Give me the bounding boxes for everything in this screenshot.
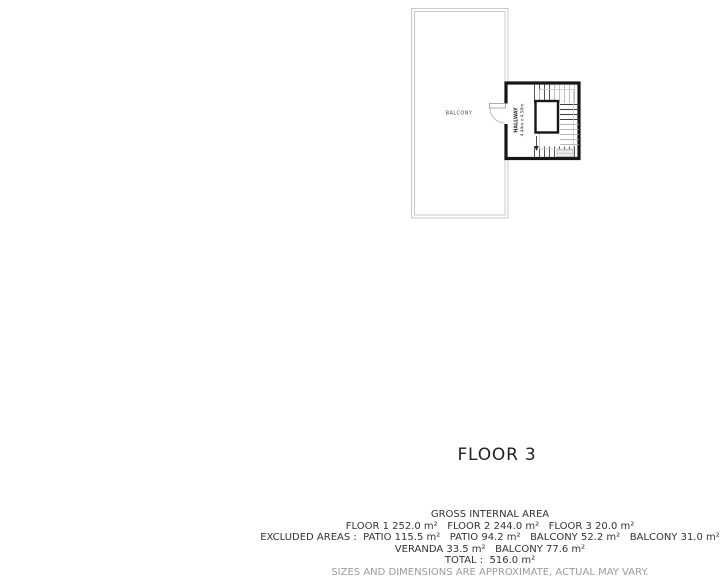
balcony-label: BALCONY: [446, 111, 473, 117]
size-disclaimer: SIZES AND DIMENSIONS ARE APPROXIMATE, AC…: [240, 567, 720, 579]
area-summary-excluded: EXCLUDED AREAS : PATIO 115.5 m² PATIO 94…: [240, 532, 720, 544]
area-summary-total: TOTAL : 516.0 m²: [240, 555, 720, 567]
floorplan-page: BALCONY: [0, 0, 720, 584]
floor-title: FLOOR 3: [417, 445, 577, 465]
hallway-label: HALLWAY: [514, 107, 520, 133]
area-summary-excluded-2: VERANDA 33.5 m² BALCONY 77.6 m²: [240, 544, 720, 556]
hallway-dimensions-label: 4.44m x 4.50m: [520, 104, 526, 137]
stairwell-void: [536, 101, 559, 133]
floorplan-drawing: BALCONY: [0, 0, 720, 584]
area-summary-floors: FLOOR 1 252.0 m² FLOOR 2 244.0 m² FLOOR …: [240, 521, 720, 533]
window-marker: [557, 150, 573, 157]
area-summary-heading: GROSS INTERNAL AREA: [240, 509, 720, 521]
area-summary: GROSS INTERNAL AREA FLOOR 1 252.0 m² FLO…: [240, 509, 720, 579]
